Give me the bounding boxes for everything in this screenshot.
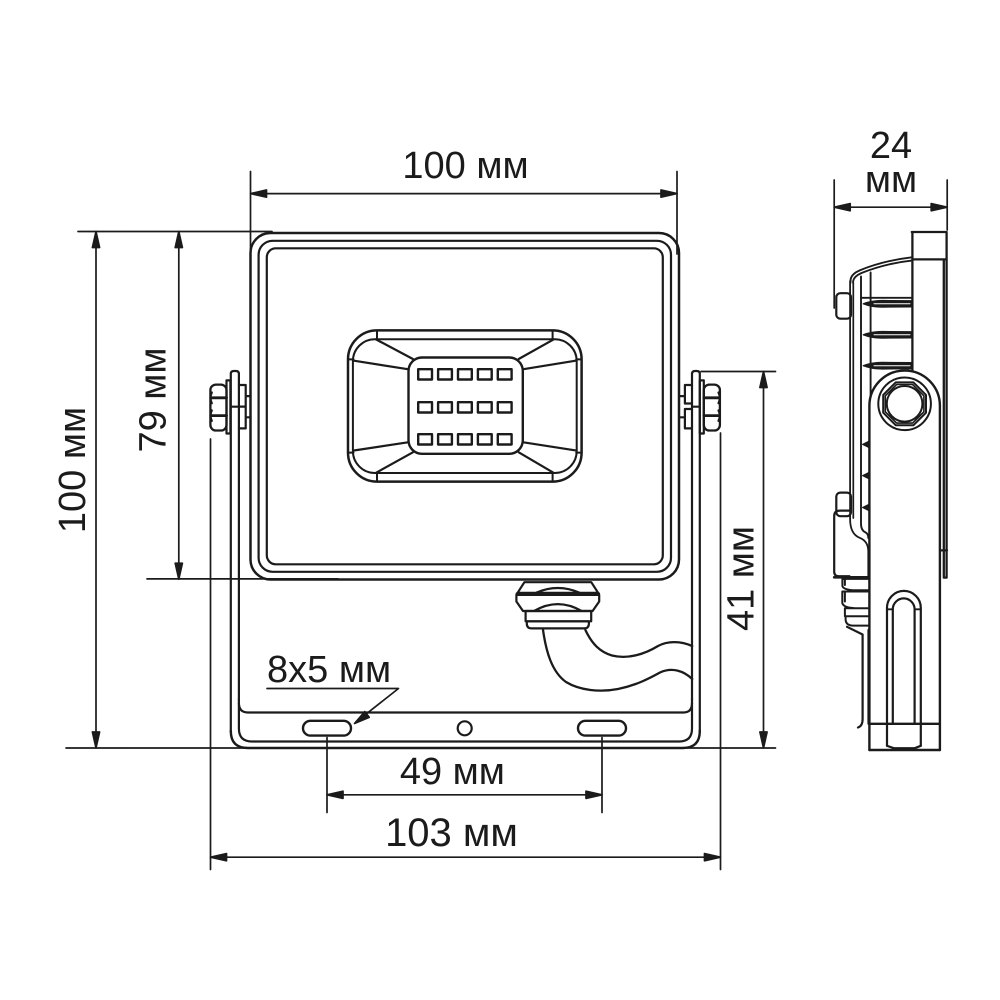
svg-text:103 мм: 103 мм — [385, 811, 518, 855]
svg-text:49 мм: 49 мм — [400, 751, 505, 793]
svg-text:100 мм: 100 мм — [402, 145, 528, 187]
svg-text:8x5 мм: 8x5 мм — [267, 649, 391, 691]
svg-text:100 мм: 100 мм — [52, 407, 94, 533]
svg-text:79 мм: 79 мм — [133, 347, 175, 452]
svg-text:41 мм: 41 мм — [721, 526, 763, 631]
svg-text:мм: мм — [865, 159, 917, 201]
